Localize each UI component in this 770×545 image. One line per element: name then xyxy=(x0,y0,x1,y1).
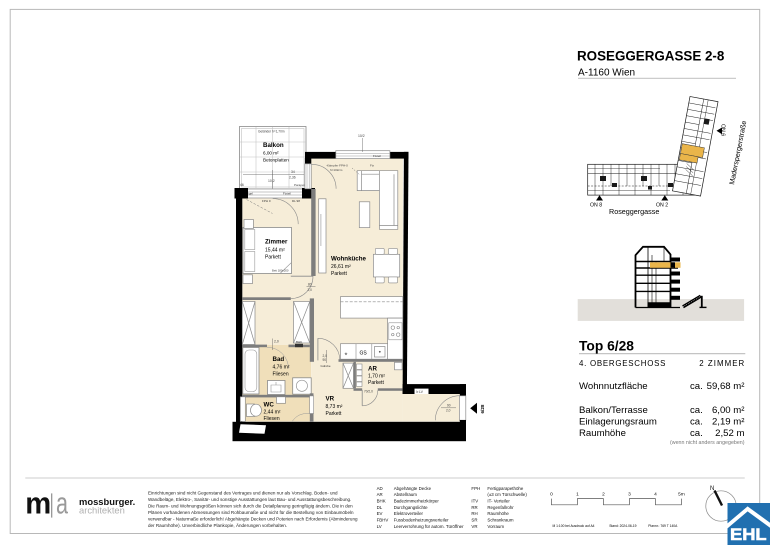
svg-text:Abstellraum: Abstellraum xyxy=(394,492,418,497)
svg-text:4. OBERGESCHOSS: 4. OBERGESCHOSS xyxy=(579,359,666,368)
svg-text:Betonplatten: Betonplatten xyxy=(263,158,289,163)
svg-text:Schrankraum: Schrankraum xyxy=(487,518,513,523)
svg-text:DL 98: DL 98 xyxy=(292,199,300,203)
svg-text:ON 6: ON 6 xyxy=(720,124,726,136)
svg-text:IT- Verteiler: IT- Verteiler xyxy=(487,499,510,504)
svg-text:SR: SR xyxy=(471,518,477,523)
svg-text:59,68 m²: 59,68 m² xyxy=(707,381,746,392)
svg-text:Maderspergerstraße: Maderspergerstraße xyxy=(727,120,748,186)
svg-text:architekten: architekten xyxy=(79,504,125,515)
svg-text:BHK: BHK xyxy=(377,499,386,504)
svg-text:GS: GS xyxy=(360,351,368,357)
svg-text:Einrichtungen sind nicht Gegen: Einrichtungen sind nicht Gegenstand des … xyxy=(148,490,338,495)
svg-text:2 ZIMMER: 2 ZIMMER xyxy=(699,359,745,368)
svg-text:Fliesen: Fliesen xyxy=(273,372,289,378)
svg-text:2,19 m²: 2,19 m² xyxy=(712,417,745,428)
svg-text:FBHV: FBHV xyxy=(377,518,389,523)
svg-text:VR: VR xyxy=(326,396,335,403)
svg-text:Fixteil: Fixteil xyxy=(373,154,381,158)
svg-text:6,00 m²: 6,00 m² xyxy=(712,405,745,416)
svg-text:Wohnküche: Wohnküche xyxy=(331,256,367,263)
svg-text:4: 4 xyxy=(654,492,657,498)
svg-text:Bad: Bad xyxy=(273,356,285,363)
svg-text:4,76 m²: 4,76 m² xyxy=(273,365,290,371)
svg-text:70/2,0: 70/2,0 xyxy=(364,390,373,394)
svg-text:10,2: 10,2 xyxy=(268,179,275,183)
svg-text:der Raumhöhe). Unverbindliche: der Raumhöhe). Unverbindliche Plankopie,… xyxy=(148,522,287,528)
svg-text:Roseggergasse: Roseggergasse xyxy=(609,207,659,216)
svg-text:34: 34 xyxy=(291,170,295,174)
svg-text:N: N xyxy=(710,486,714,492)
svg-text:Parkett: Parkett xyxy=(265,255,281,261)
svg-text:Fliesen: Fliesen xyxy=(264,416,280,422)
svg-text:Abgehängte Decke: Abgehängte Decke xyxy=(394,486,432,491)
svg-text:*: * xyxy=(345,351,348,360)
svg-text:M 1:100 bei Ausdruck auf A4: M 1:100 bei Ausdruck auf A4 xyxy=(553,524,595,528)
svg-text:Fix: Fix xyxy=(370,164,374,168)
svg-text:ca.: ca. xyxy=(690,417,703,428)
svg-text:3: 3 xyxy=(628,492,631,498)
svg-text:Wohnnutzfläche: Wohnnutzfläche xyxy=(579,381,648,392)
svg-text:Parkett: Parkett xyxy=(326,411,342,417)
svg-text:h=102cm: h=102cm xyxy=(330,168,343,172)
svg-text:0: 0 xyxy=(550,492,553,498)
svg-text:Durchgangslichte: Durchgangslichte xyxy=(394,505,428,510)
svg-text:BHK: BHK xyxy=(296,340,302,344)
svg-text:AR: AR xyxy=(368,366,377,373)
svg-text:2: 2 xyxy=(602,492,605,498)
svg-text:1: 1 xyxy=(576,492,579,498)
svg-text:Stand: 2024-06-19: Stand: 2024-06-19 xyxy=(609,524,636,528)
svg-text:Parkett: Parkett xyxy=(368,380,384,386)
svg-text:10/2: 10/2 xyxy=(358,134,365,138)
svg-text:EHL: EHL xyxy=(730,525,767,544)
svg-text:90: 90 xyxy=(447,404,451,408)
svg-text:verwendbar - Naturmaße erforde: verwendbar - Naturmaße erforderlich! Abg… xyxy=(148,516,358,521)
svg-text:Raumhöhe: Raumhöhe xyxy=(579,428,626,439)
svg-text:2,36: 2,36 xyxy=(289,176,296,180)
svg-text:6/28: 6/28 xyxy=(480,404,485,413)
svg-text:8,73 m²: 8,73 m² xyxy=(326,404,343,410)
svg-text:Leerverrohrung für autom. Türö: Leerverrohrung für autom. Türöffner xyxy=(394,524,464,529)
svg-text:DL: DL xyxy=(377,505,383,510)
svg-text:Elektroverteiler: Elektroverteiler xyxy=(394,511,424,516)
svg-text:Vorraum: Vorraum xyxy=(487,524,504,529)
svg-text:-Kämpfer FPH-0: -Kämpfer FPH-0 xyxy=(326,164,348,168)
svg-text:(±3 cm Türschwelle): (±3 cm Türschwelle) xyxy=(487,492,527,497)
svg-text:5m: 5m xyxy=(678,492,685,498)
svg-text:Plannr.: 769 T 140A: Plannr.: 769 T 140A xyxy=(648,524,678,528)
svg-text:15,44 m²: 15,44 m² xyxy=(265,248,285,254)
svg-text:a: a xyxy=(56,487,68,521)
svg-text:80: 80 xyxy=(308,283,312,287)
svg-text:Balkon/Terrasse: Balkon/Terrasse xyxy=(579,405,648,416)
svg-text:Einlagerungsraum: Einlagerungsraum xyxy=(579,417,657,428)
svg-text:Top 6/28: Top 6/28 xyxy=(579,339,634,354)
svg-text:ca.: ca. xyxy=(690,381,703,392)
svg-text:Regenfallrohr: Regenfallrohr xyxy=(487,505,514,510)
svg-text:A-1160 Wien: A-1160 Wien xyxy=(578,68,635,79)
svg-text:VR: VR xyxy=(471,524,477,529)
svg-text:2,0: 2,0 xyxy=(274,340,279,344)
svg-text:FPH: FPH xyxy=(471,486,480,491)
svg-text:90: 90 xyxy=(323,358,327,362)
svg-text:Fertigparapethöhe: Fertigparapethöhe xyxy=(487,486,523,491)
svg-text:ITV: ITV xyxy=(471,499,478,504)
svg-text:Parapet: Parapet xyxy=(294,183,305,187)
svg-text:46: 46 xyxy=(240,183,244,187)
svg-text:ON 8: ON 8 xyxy=(590,203,602,209)
svg-text:Fixteil: Fixteil xyxy=(283,192,291,196)
svg-text:Balkon: Balkon xyxy=(263,142,284,149)
svg-text:ca.: ca. xyxy=(690,405,703,416)
svg-text:1,70 m²: 1,70 m² xyxy=(368,374,385,380)
svg-text:m: m xyxy=(25,487,51,521)
svg-text:Badezimmerheizkörper: Badezimmerheizkörper xyxy=(394,499,440,504)
svg-text:Bett 180x200: Bett 180x200 xyxy=(272,269,289,273)
svg-text:2,0: 2,0 xyxy=(446,409,451,413)
svg-text:WC: WC xyxy=(264,402,275,409)
svg-text:Fussbodenheizungsverteiler: Fussbodenheizungsverteiler xyxy=(394,518,449,523)
svg-text:Die Raum- und Wohnungsgrößen k: Die Raum- und Wohnungsgrößen können sich… xyxy=(148,503,353,508)
svg-text:Gdrobe: Gdrobe xyxy=(321,364,331,368)
svg-text:2,52 m: 2,52 m xyxy=(715,428,744,439)
svg-text:Raumhöhe: Raumhöhe xyxy=(487,511,509,516)
svg-text:2,44 m²: 2,44 m² xyxy=(264,410,281,416)
svg-text:AD: AD xyxy=(377,486,383,491)
svg-text:(wenn nicht anders angegeben): (wenn nicht anders angegeben) xyxy=(670,440,745,446)
svg-text:ROSEGGERGASSE 2-8: ROSEGGERGASSE 2-8 xyxy=(577,49,725,64)
svg-text:Parkett: Parkett xyxy=(331,271,347,277)
svg-text:ca.: ca. xyxy=(690,428,703,439)
svg-text:6,00 m²: 6,00 m² xyxy=(263,151,279,156)
svg-text:Wandbeläge, Elektro-, Sanitär-: Wandbeläge, Elektro-, Sanitär- und sonst… xyxy=(148,497,351,502)
svg-text:AR: AR xyxy=(377,492,383,497)
svg-text:Geländer h=1,70m: Geländer h=1,70m xyxy=(258,130,285,134)
svg-text:RH: RH xyxy=(471,511,477,516)
svg-text:EV: EV xyxy=(377,511,383,516)
svg-text:Plänen vorhandenen Abmessungen: Plänen vorhandenen Abmessungen sind Rohb… xyxy=(148,510,354,515)
svg-text:RR: RR xyxy=(471,505,477,510)
svg-text:FPH 0: FPH 0 xyxy=(262,199,271,203)
svg-text:2,0: 2,0 xyxy=(308,288,313,292)
svg-text:LV: LV xyxy=(377,524,382,529)
svg-text:26,61 m²: 26,61 m² xyxy=(331,264,351,270)
svg-text:Zimmer: Zimmer xyxy=(265,239,288,246)
svg-text:b LV: b LV xyxy=(417,390,424,394)
